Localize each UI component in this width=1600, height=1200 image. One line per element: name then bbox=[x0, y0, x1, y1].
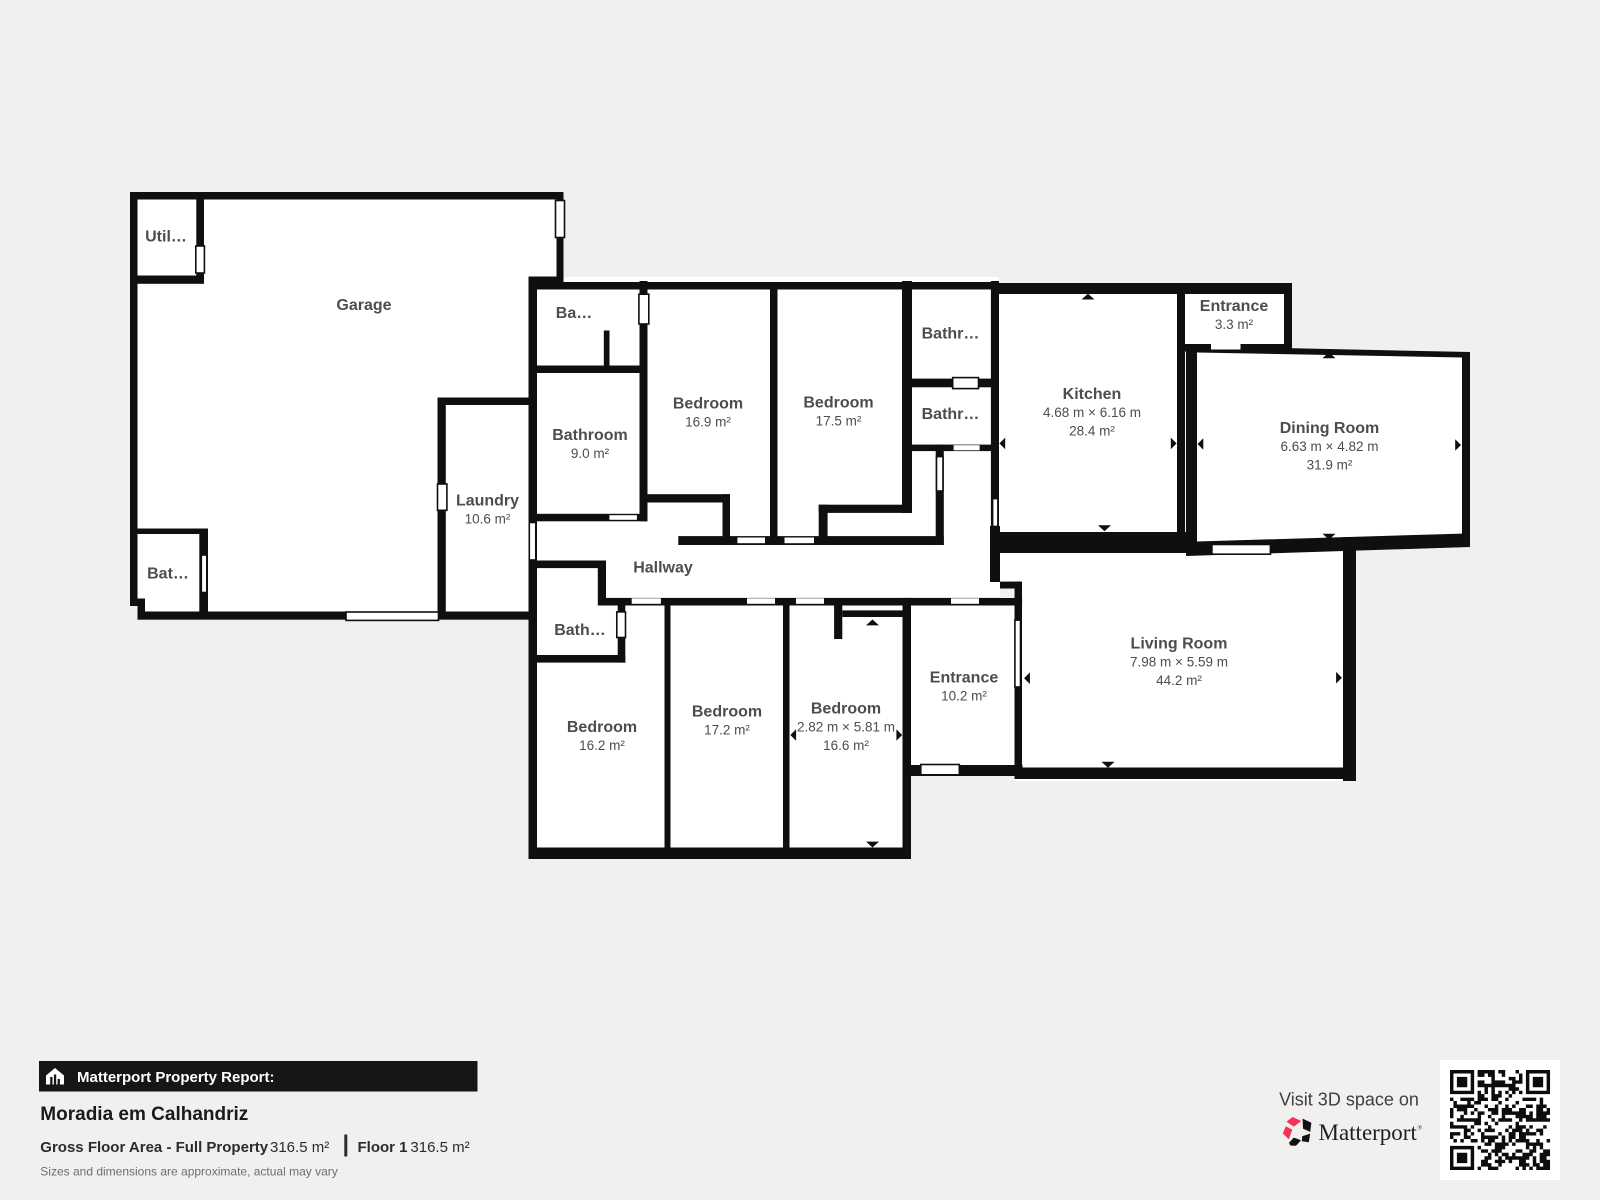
svg-text:Kitchen: Kitchen bbox=[1063, 386, 1122, 403]
svg-text:®: ® bbox=[1418, 1125, 1423, 1132]
svg-text:Entrance: Entrance bbox=[930, 670, 999, 687]
svg-text:Laundry: Laundry bbox=[456, 493, 519, 510]
svg-text:Matterport: Matterport bbox=[1319, 1120, 1418, 1145]
svg-text:16.9 m²: 16.9 m² bbox=[685, 415, 731, 430]
svg-text:Bedroom: Bedroom bbox=[803, 395, 873, 412]
svg-text:3.3 m²: 3.3 m² bbox=[1215, 317, 1254, 332]
svg-text:31.9 m²: 31.9 m² bbox=[1307, 458, 1353, 473]
svg-text:16.6 m²: 16.6 m² bbox=[823, 738, 869, 753]
svg-text:Gross Floor Area - Full Proper: Gross Floor Area - Full Property bbox=[40, 1139, 268, 1156]
svg-text:10.2 m²: 10.2 m² bbox=[941, 689, 987, 704]
svg-text:Entrance: Entrance bbox=[1200, 298, 1269, 315]
svg-text:4.68 m × 6.16 m: 4.68 m × 6.16 m bbox=[1043, 405, 1141, 420]
svg-text:Visit 3D space on: Visit 3D space on bbox=[1279, 1090, 1419, 1110]
svg-text:7.98 m × 5.59 m: 7.98 m × 5.59 m bbox=[1130, 655, 1228, 670]
svg-text:6.63 m × 4.82 m: 6.63 m × 4.82 m bbox=[1281, 439, 1379, 454]
svg-text:Moradia em Calhandriz: Moradia em Calhandriz bbox=[40, 1104, 248, 1125]
svg-text:9.0 m²: 9.0 m² bbox=[571, 446, 610, 461]
svg-text:Bedroom: Bedroom bbox=[692, 704, 762, 721]
svg-text:Bedroom: Bedroom bbox=[567, 719, 637, 736]
svg-text:44.2 m²: 44.2 m² bbox=[1156, 673, 1202, 688]
svg-text:Living Room: Living Room bbox=[1131, 636, 1228, 653]
svg-text:28.4 m²: 28.4 m² bbox=[1069, 424, 1115, 439]
svg-text:Sizes and dimensions are appro: Sizes and dimensions are approximate, ac… bbox=[40, 1165, 337, 1179]
svg-text:Hallway: Hallway bbox=[633, 560, 693, 577]
svg-text:Bedroom: Bedroom bbox=[811, 701, 881, 718]
svg-text:Bathr…: Bathr… bbox=[922, 326, 980, 343]
svg-text:316.5 m²: 316.5 m² bbox=[410, 1139, 469, 1156]
svg-text:17.2 m²: 17.2 m² bbox=[704, 723, 750, 738]
svg-text:Dining Room: Dining Room bbox=[1280, 420, 1380, 437]
svg-text:316.5 m²: 316.5 m² bbox=[270, 1139, 329, 1156]
svg-text:Ba…: Ba… bbox=[556, 305, 592, 322]
svg-text:Bathroom: Bathroom bbox=[552, 427, 628, 444]
svg-text:Bedroom: Bedroom bbox=[673, 396, 743, 413]
svg-text:Garage: Garage bbox=[336, 297, 391, 314]
svg-text:Matterport Property Report:: Matterport Property Report: bbox=[77, 1069, 275, 1086]
svg-text:10.6 m²: 10.6 m² bbox=[465, 512, 511, 527]
svg-text:Floor 1: Floor 1 bbox=[358, 1139, 408, 1156]
svg-text:2.82 m × 5.81 m: 2.82 m × 5.81 m bbox=[797, 720, 895, 735]
svg-text:16.2 m²: 16.2 m² bbox=[579, 738, 625, 753]
svg-text:Bat…: Bat… bbox=[147, 566, 189, 583]
svg-text:Bathr…: Bathr… bbox=[922, 406, 980, 423]
svg-text:Util…: Util… bbox=[145, 229, 187, 246]
svg-text:Bath…: Bath… bbox=[554, 622, 606, 639]
svg-text:17.5 m²: 17.5 m² bbox=[816, 414, 862, 429]
